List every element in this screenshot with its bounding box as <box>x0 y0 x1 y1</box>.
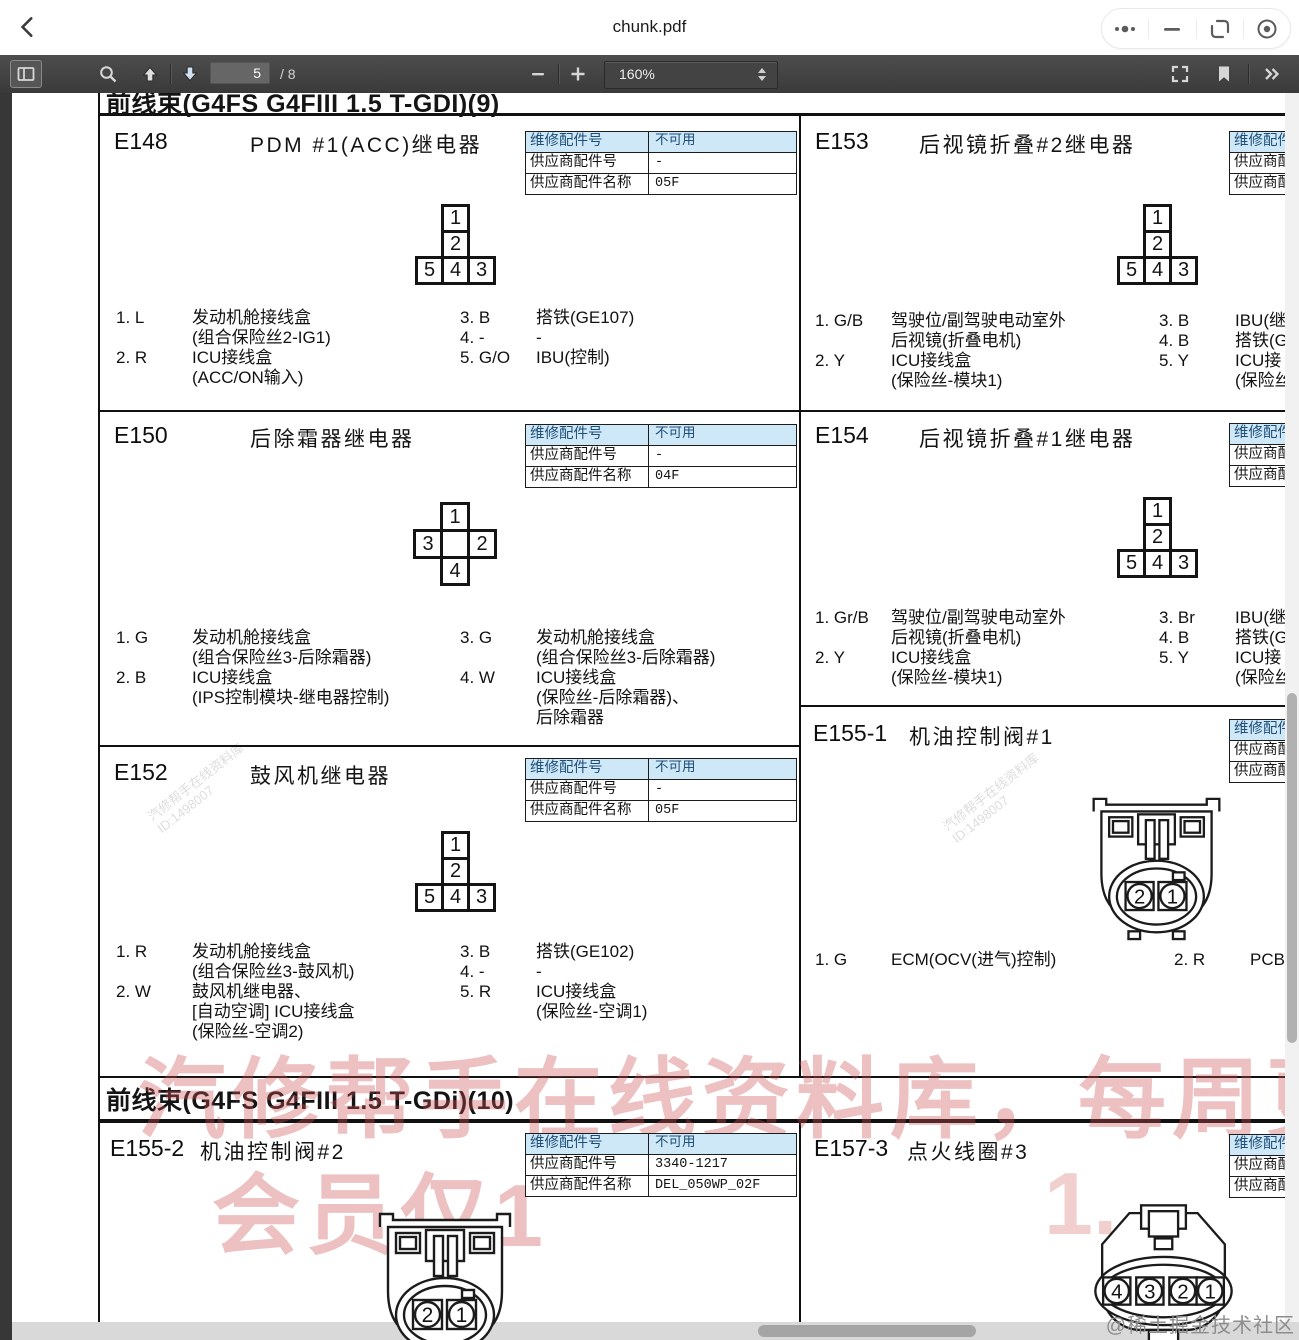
component-cell-e150: E150 后除霜器继电器 维修配件号不可用 供应商配件号- 供应商配件名称04F… <box>100 410 799 745</box>
pin-column: 1. G/B驾驶位/副驾驶电动室外 后视镜(折叠电机) 2. YICU接线盒 (… <box>815 311 1151 391</box>
pin-entry: 4. WICU接线盒 (保险丝-后除霜器)、 后除霜器 <box>460 668 796 728</box>
component-name: 后视镜折叠#1继电器 <box>919 423 1135 453</box>
presentation-mode-button[interactable] <box>1164 60 1196 88</box>
pin-number: 4. B <box>1159 628 1235 648</box>
section-header-9: 前线束(G4FS G4FIII 1.5 T-GDI)(9) <box>106 93 500 120</box>
pin-box: 2 <box>1143 523 1172 552</box>
pin-desc: PCB <box>1250 950 1285 970</box>
pin-number: 3. Br <box>1159 608 1235 628</box>
parts-info-table: 维修配件号不可用 供应商配件号- 供应商配件名称05F <box>525 131 797 195</box>
connector-diagram-5pin: 1 2 5 4 3 <box>1117 204 1198 285</box>
arrow-up-icon <box>140 64 160 84</box>
search-button[interactable] <box>92 60 124 88</box>
pin-entry: 2. YICU接线盒 (保险丝-模块1) <box>815 351 1151 391</box>
pin-desc: - <box>536 328 542 348</box>
pin-entry: 4. B搭铁(G <box>1159 628 1285 648</box>
table-label: 供应商配件号 <box>526 1155 649 1175</box>
plus-icon <box>569 65 587 83</box>
pin-box: 1 <box>1143 204 1172 233</box>
window-titlebar: chunk.pdf <box>0 0 1299 55</box>
component-id: E152 <box>114 759 168 786</box>
table-label: 供应商配件名称 <box>1230 466 1285 486</box>
pdf-toolbar: / 8 160% <box>0 55 1299 94</box>
component-cell-e152: E152 鼓风机继电器 维修配件号不可用 供应商配件号- 供应商配件名称05F … <box>100 745 799 1076</box>
sidebar-icon <box>16 64 36 84</box>
table-value: - <box>649 780 796 800</box>
component-cell-e148: E148 PDM #1(ACC)继电器 维修配件号不可用 供应商配件号- 供应商… <box>100 116 799 410</box>
pin-number: 2. W <box>116 982 192 1042</box>
pdf-viewer-window: chunk.pdf <box>0 0 1299 1340</box>
table-label: 供应商配件号 <box>1230 445 1285 465</box>
pin-number: 2. R <box>116 348 192 388</box>
table-row: 维修配件号不可用 <box>526 132 796 153</box>
component-id: E157-3 <box>814 1135 888 1162</box>
table-label: 供应商配件号 <box>1230 741 1285 761</box>
pin-column: 1. R发动机舱接线盒 (组合保险丝3-鼓风机) 2. W鼓风机继电器、 [自动… <box>116 942 452 1042</box>
pin-column: 1. GECM(OCV(进气)控制) <box>815 950 1151 970</box>
pin-column: 1. L发动机舱接线盒 (组合保险丝2-IG1) 2. RICU接线盒 (ACC… <box>116 308 452 388</box>
pin-desc: IBU(继 <box>1235 311 1285 331</box>
table-label: 供应商配件名称 <box>526 801 649 821</box>
pin-number: 1. G <box>116 628 192 668</box>
parts-info-table-clipped: 维修配件号 供应商配件号 供应商配件名称 <box>1229 131 1285 195</box>
component-name: PDM #1(ACC)继电器 <box>250 129 482 159</box>
component-id: E154 <box>815 422 869 449</box>
pin-circle-label: 2 <box>1134 886 1145 908</box>
divider <box>170 64 171 84</box>
component-name: 后除霜器继电器 <box>250 423 415 453</box>
pin-desc: 驾驶位/副驾驶电动室外 后视镜(折叠电机) <box>891 311 1066 351</box>
pin-box: 3 <box>1169 256 1198 285</box>
table-row: 供应商配件号- <box>526 153 796 174</box>
pin-box: 1 <box>440 502 470 532</box>
row-divider <box>98 1076 1285 1078</box>
table-label: 供应商配件名称 <box>526 467 649 487</box>
pin-number: 5. G/O <box>460 348 536 368</box>
pin-column: 3. B搭铁(GE102) 4. -- 5. RICU接线盒 (保险丝-空调1) <box>460 942 796 1022</box>
page-number-input[interactable] <box>210 62 270 84</box>
pin-circle-label: 2 <box>1177 1280 1188 1303</box>
component-cell-e157-3: E157-3 点火线圈#3 维修配件号 供应商配件号 供应商配件名称 <box>799 1125 1285 1340</box>
table-row: 供应商配件名称 <box>1230 466 1285 486</box>
parts-info-table-clipped: 维修配件号 供应商配件号 供应商配件名称 <box>1229 1134 1285 1198</box>
table-row: 供应商配件号3340-1217 <box>526 1155 796 1176</box>
table-label: 供应商配件名称 <box>1230 762 1285 782</box>
pin-desc: ICU接 (保险丝 <box>1235 648 1285 688</box>
pin-column: 3. B搭铁(GE107) 4. -- 5. G/OIBU(控制) <box>460 308 796 368</box>
table-value: 04F <box>649 467 796 487</box>
table-label: 维修配件号 <box>526 425 649 445</box>
bookmark-icon <box>1214 64 1234 84</box>
table-value: 不可用 <box>649 759 796 779</box>
pin-entry: 1. G/B驾驶位/副驾驶电动室外 后视镜(折叠电机) <box>815 311 1151 351</box>
window-controls <box>1101 8 1291 49</box>
circle-dot-icon <box>1255 17 1279 41</box>
restore-icon <box>1208 17 1232 41</box>
pin-column: 3. BrIBU(继 4. B搭铁(G 5. YICU接 (保险丝 <box>1159 608 1285 688</box>
table-value: DEL_050WP_02F <box>649 1176 796 1196</box>
pin-desc: ICU接线盒 (保险丝-空调1) <box>536 982 647 1022</box>
table-row: 供应商配件名称DEL_050WP_02F <box>526 1176 796 1196</box>
select-spinner-icon <box>758 68 766 81</box>
pin-desc: ICU接线盒 (ACC/ON输入) <box>192 348 303 388</box>
table-value: 不可用 <box>649 1134 796 1154</box>
pin-entry: 3. BIBU(继 <box>1159 311 1285 331</box>
quit-circle-button[interactable] <box>1250 14 1284 44</box>
table-row: 供应商配件名称 <box>1230 762 1285 782</box>
pin-circle-label: 1 <box>1205 1280 1216 1303</box>
pin-number: 5. Y <box>1159 351 1235 391</box>
zoom-level-select[interactable]: 160% <box>604 61 778 89</box>
component-cell-e155-1: E155-1 机油控制阀#1 维修配件号 供应商配件号 供应商配件名称 <box>799 705 1285 1076</box>
pin-box: 1 <box>441 831 470 860</box>
table-label: 供应商配件号 <box>1230 1156 1285 1176</box>
table-label: 供应商配件号 <box>1230 153 1285 173</box>
pin-number: 4. - <box>460 962 536 982</box>
pin-box: 5 <box>415 883 444 912</box>
table-label: 供应商配件号 <box>526 780 649 800</box>
pin-circle-label: 3 <box>1144 1280 1155 1303</box>
table-label: 维修配件号 <box>1230 424 1285 444</box>
table-row: 维修配件号 <box>1230 720 1285 741</box>
pin-box: 3 <box>467 256 496 285</box>
pin-box: 3 <box>1169 549 1198 578</box>
pin-box: 5 <box>415 256 444 285</box>
vertical-scrollbar-thumb[interactable] <box>1287 693 1297 1043</box>
pin-column: 3. BIBU(继 4. B搭铁(G 5. YICU接 (保险丝 <box>1159 311 1285 391</box>
table-row: 供应商配件名称05F <box>526 174 796 194</box>
page-up-button[interactable] <box>134 60 166 88</box>
table-row: 供应商配件名称 <box>1230 174 1285 194</box>
pin-desc: IBU(控制) <box>536 348 610 368</box>
table-label: 维修配件号 <box>526 132 649 152</box>
table-label: 供应商配件名称 <box>526 174 649 194</box>
pin-entry: 1. G发动机舱接线盒 (组合保险丝3-后除霜器) <box>116 628 452 668</box>
double-chevron-right-icon <box>1262 64 1282 84</box>
table-row: 供应商配件名称04F <box>526 467 796 487</box>
pin-entry: 2. W鼓风机继电器、 [自动空调] ICU接线盒 (保险丝-空调2) <box>116 982 452 1042</box>
table-value: 3340-1217 <box>649 1155 796 1175</box>
pin-desc: 发动机舱接线盒 (组合保险丝3-后除霜器) <box>536 628 715 668</box>
pin-entry: 3. BrIBU(继 <box>1159 608 1285 628</box>
table-row: 供应商配件号 <box>1230 153 1285 174</box>
pin-entry: 1. R发动机舱接线盒 (组合保险丝3-鼓风机) <box>116 942 452 982</box>
sidebar-toggle-button[interactable] <box>10 60 42 88</box>
pin-desc: 搭铁(G <box>1235 628 1285 648</box>
pin-number: 4. W <box>460 668 536 728</box>
pin-box: 3 <box>467 883 496 912</box>
pin-desc: 搭铁(GE107) <box>536 308 634 328</box>
pin-desc: ICU接线盒 (保险丝-模块1) <box>891 351 1002 391</box>
divider <box>1248 64 1249 84</box>
divider <box>1196 19 1197 39</box>
pin-entry: 4. B搭铁(G <box>1159 331 1285 351</box>
connector-drawing-2pin-round: 2 1 <box>1084 788 1229 948</box>
pin-desc: ICU接线盒 (IPS控制模块-继电器控制) <box>192 668 389 708</box>
parts-info-table: 维修配件号不可用 供应商配件号- 供应商配件名称04F <box>525 424 797 488</box>
pin-entry: 1. Gr/B驾驶位/副驾驶电动室外 后视镜(折叠电机) <box>815 608 1151 648</box>
pin-column: 2. RPCB <box>1174 950 1285 970</box>
pin-box: 4 <box>441 883 470 912</box>
pin-circle-label: 2 <box>422 1304 434 1327</box>
section-header-10: 前线束(G4FS G4FIII 1.5 T-GDi)(10) <box>106 1081 514 1117</box>
table-row: 供应商配件号 <box>1230 741 1285 762</box>
table-label: 供应商配件名称 <box>1230 174 1285 194</box>
pin-entry: 1. L发动机舱接线盒 (组合保险丝2-IG1) <box>116 308 452 348</box>
table-row: 维修配件号不可用 <box>526 759 796 780</box>
pin-desc: ICU接线盒 (保险丝-模块1) <box>891 648 1002 688</box>
pin-desc: ICU接 (保险丝 <box>1235 351 1285 391</box>
component-name: 点火线圈#3 <box>907 1136 1029 1166</box>
pin-number: 1. R <box>116 942 192 982</box>
zoom-out-button[interactable] <box>522 60 554 88</box>
table-value: - <box>649 446 796 466</box>
pin-entry: 2. BICU接线盒 (IPS控制模块-继电器控制) <box>116 668 452 708</box>
pin-desc: 发动机舱接线盒 (组合保险丝3-后除霜器) <box>192 628 371 668</box>
table-label: 维修配件号 <box>526 759 649 779</box>
pin-circle-label: 4 <box>1111 1280 1122 1303</box>
component-id: E153 <box>815 128 869 155</box>
minimize-icon <box>1160 17 1184 41</box>
pin-box: 1 <box>441 204 470 233</box>
pin-column: 3. G发动机舱接线盒 (组合保险丝3-后除霜器) 4. WICU接线盒 (保险… <box>460 628 796 728</box>
pin-entry: 4. -- <box>460 962 796 982</box>
pin-box: 4 <box>1143 256 1172 285</box>
pin-entry: 4. -- <box>460 328 796 348</box>
pin-circle-label: 1 <box>456 1304 468 1327</box>
connector-diagram-5pin: 1 2 5 4 3 <box>415 204 496 285</box>
pin-desc: IBU(继 <box>1235 608 1285 628</box>
table-label: 供应商配件号 <box>526 153 649 173</box>
table-value: 不可用 <box>649 132 796 152</box>
table-label: 维修配件号 <box>1230 132 1285 152</box>
component-name: 鼓风机继电器 <box>250 760 391 790</box>
pin-box: 4 <box>1143 549 1172 578</box>
watermark-corner: @稀土掘金技术社区 <box>1106 1309 1295 1338</box>
restore-window-button[interactable] <box>1203 14 1237 44</box>
viewer-left-gutter <box>0 93 12 1340</box>
component-id: E155-2 <box>110 1135 184 1162</box>
pin-box: 5 <box>1117 549 1146 578</box>
pin-number: 3. G <box>460 628 536 668</box>
table-row: 维修配件号不可用 <box>526 1134 796 1155</box>
page-count-label: / 8 <box>280 66 296 82</box>
more-options-button[interactable] <box>1108 14 1142 44</box>
connector-drawing-2pin-round: 2 1 <box>370 1203 520 1340</box>
vertical-scrollbar[interactable] <box>1285 93 1299 1322</box>
pin-entry: 2. YICU接线盒 (保险丝-模块1) <box>815 648 1151 688</box>
pin-number: 1. Gr/B <box>815 608 891 648</box>
component-name: 后视镜折叠#2继电器 <box>919 129 1135 159</box>
pin-entry: 3. B搭铁(GE102) <box>460 942 796 962</box>
table-value: 05F <box>649 801 796 821</box>
pin-entry: 3. G发动机舱接线盒 (组合保险丝3-后除霜器) <box>460 628 796 668</box>
zoom-in-button[interactable] <box>562 60 594 88</box>
connector-diagram-5pin: 1 2 5 4 3 <box>415 831 496 912</box>
minimize-button[interactable] <box>1155 14 1189 44</box>
pin-box: 2 <box>1143 230 1172 259</box>
pin-number: 2. R <box>1174 950 1250 970</box>
pin-column: 1. G发动机舱接线盒 (组合保险丝3-后除霜器) 2. BICU接线盒 (IP… <box>116 628 452 708</box>
table-label: 维修配件号 <box>1230 720 1285 740</box>
connector-diagram-5pin: 1 2 5 4 3 <box>1117 497 1198 578</box>
component-id: E148 <box>114 128 168 155</box>
pin-number: 3. B <box>1159 311 1235 331</box>
arrow-down-icon <box>180 64 200 84</box>
pin-desc: 驾驶位/副驾驶电动室外 后视镜(折叠电机) <box>891 608 1066 648</box>
pin-entry: 5. YICU接 (保险丝 <box>1159 648 1285 688</box>
pin-number: 5. R <box>460 982 536 1022</box>
toolbar-more-button[interactable] <box>1256 60 1288 88</box>
pin-box: 4 <box>440 556 470 586</box>
pin-box: 2 <box>467 529 497 559</box>
parts-info-table: 维修配件号不可用 供应商配件号3340-1217 供应商配件名称DEL_050W… <box>525 1133 797 1197</box>
pin-entry: 5. YICU接 (保险丝 <box>1159 351 1285 391</box>
pin-entry: 5. G/OIBU(控制) <box>460 348 796 368</box>
component-name: 机油控制阀#1 <box>909 721 1055 751</box>
table-row: 供应商配件号 <box>1230 1156 1285 1177</box>
pin-box: 2 <box>441 230 470 259</box>
pin-number: 3. B <box>460 308 536 328</box>
pdf-viewer-area: 前线束(G4FS G4FIII 1.5 T-GDI)(9) 前线束(G4FS G… <box>0 93 1299 1340</box>
table-label: 供应商配件名称 <box>1230 1177 1285 1197</box>
component-cell-e154: E154 后视镜折叠#1继电器 维修配件号 供应商配件号 供应商配件名称 1 2… <box>799 410 1285 705</box>
pin-desc: ECM(OCV(进气)控制) <box>891 950 1056 970</box>
table-row: 维修配件号 <box>1230 132 1285 153</box>
pin-entry: 2. RPCB <box>1174 950 1285 970</box>
pin-desc: 鼓风机继电器、 [自动空调] ICU接线盒 (保险丝-空调2) <box>192 982 354 1042</box>
minus-icon <box>529 65 547 83</box>
pin-desc: 发动机舱接线盒 (组合保险丝2-IG1) <box>192 308 331 348</box>
component-id: E150 <box>114 422 168 449</box>
divider <box>558 64 559 84</box>
pin-number: 3. B <box>460 942 536 962</box>
pin-number: 5. Y <box>1159 648 1235 688</box>
pin-desc: 搭铁(G <box>1235 331 1285 351</box>
component-id: E155-1 <box>813 720 887 747</box>
pin-number: 2. Y <box>815 351 891 391</box>
table-label: 维修配件号 <box>526 1134 649 1154</box>
divider <box>1148 19 1149 39</box>
component-cell-e153: E153 后视镜折叠#2继电器 维修配件号 供应商配件号 供应商配件名称 1 2… <box>799 116 1285 410</box>
pin-column: 1. Gr/B驾驶位/副驾驶电动室外 后视镜(折叠电机) 2. YICU接线盒 … <box>815 608 1151 688</box>
pin-box-empty <box>440 529 470 559</box>
pin-box: 4 <box>441 256 470 285</box>
table-row: 维修配件号 <box>1230 424 1285 445</box>
connector-diagram-4pin-cross: 1 3 2 4 <box>413 502 497 586</box>
page-down-button[interactable] <box>174 60 206 88</box>
pin-box: 3 <box>413 529 443 559</box>
pin-entry: 2. RICU接线盒 (ACC/ON输入) <box>116 348 452 388</box>
pin-desc: ICU接线盒 (保险丝-后除霜器)、 后除霜器 <box>536 668 689 728</box>
table-row: 供应商配件名称 <box>1230 1177 1285 1197</box>
pin-desc: 发动机舱接线盒 (组合保险丝3-鼓风机) <box>192 942 354 982</box>
pin-box: 5 <box>1117 256 1146 285</box>
horizontal-scrollbar-thumb[interactable] <box>758 1325 976 1337</box>
pin-number: 1. G/B <box>815 311 891 351</box>
fullscreen-icon <box>1170 64 1190 84</box>
parts-info-table-clipped: 维修配件号 供应商配件号 供应商配件名称 <box>1229 719 1285 783</box>
table-label: 供应商配件号 <box>526 446 649 466</box>
bookmark-button[interactable] <box>1208 60 1240 88</box>
table-value: - <box>649 153 796 173</box>
table-label: 维修配件号 <box>1230 1135 1285 1155</box>
pin-box: 2 <box>441 857 470 886</box>
zoom-level-value: 160% <box>619 66 655 82</box>
pin-number: 2. Y <box>815 648 891 688</box>
more-dots-icon <box>1112 17 1138 41</box>
pin-entry: 1. GECM(OCV(进气)控制) <box>815 950 1151 970</box>
component-name: 机油控制阀#2 <box>200 1136 346 1166</box>
table-value: 05F <box>649 174 796 194</box>
search-icon <box>98 64 118 84</box>
pin-desc: - <box>536 962 542 982</box>
component-cell-e155-2: E155-2 机油控制阀#2 维修配件号不可用 供应商配件号3340-1217 … <box>100 1125 799 1340</box>
table-row: 维修配件号 <box>1230 1135 1285 1156</box>
pin-number: 4. B <box>1159 331 1235 351</box>
pin-number: 1. G <box>815 950 891 970</box>
pin-number: 4. - <box>460 328 536 348</box>
pin-number: 1. L <box>116 308 192 348</box>
pin-number: 2. B <box>116 668 192 708</box>
table-row: 供应商配件号- <box>526 780 796 801</box>
table-value: 不可用 <box>649 425 796 445</box>
parts-info-table-clipped: 维修配件号 供应商配件号 供应商配件名称 <box>1229 423 1285 487</box>
pin-entry: 5. RICU接线盒 (保险丝-空调1) <box>460 982 796 1022</box>
parts-info-table: 维修配件号不可用 供应商配件号- 供应商配件名称05F <box>525 758 797 822</box>
pin-desc: 搭铁(GE102) <box>536 942 634 962</box>
section-rule <box>98 1119 1285 1123</box>
pin-box: 1 <box>1143 497 1172 526</box>
pin-circle-label: 1 <box>1167 886 1178 908</box>
table-label: 供应商配件名称 <box>526 1176 649 1196</box>
pdf-page[interactable]: 前线束(G4FS G4FIII 1.5 T-GDI)(9) 前线束(G4FS G… <box>12 93 1285 1340</box>
divider <box>1243 19 1244 39</box>
table-row: 供应商配件号 <box>1230 445 1285 466</box>
pin-entry: 3. B搭铁(GE107) <box>460 308 796 328</box>
table-row: 供应商配件名称05F <box>526 801 796 821</box>
table-row: 供应商配件号- <box>526 446 796 467</box>
table-row: 维修配件号不可用 <box>526 425 796 446</box>
